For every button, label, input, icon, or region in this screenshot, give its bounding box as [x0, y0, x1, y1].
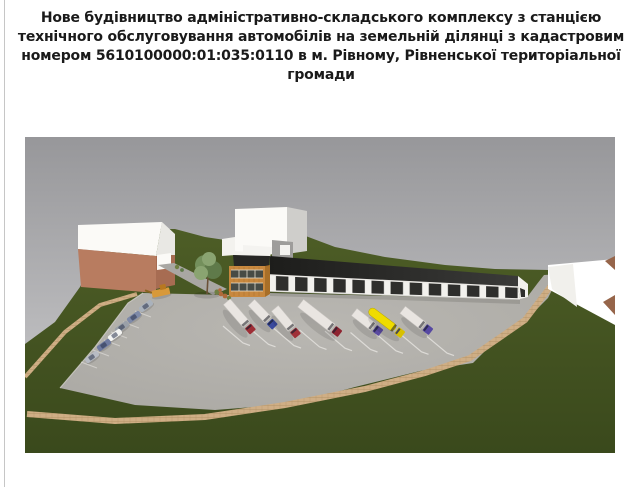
title-line: Нове будівництво адміністративно-складсь…: [10, 9, 632, 28]
site-3d-scene: [25, 137, 615, 453]
admin-building: [229, 251, 271, 297]
title-line: технічного обслуговування автомобілів на…: [10, 28, 632, 47]
project-title: Нове будівництво адміністративно-складсь…: [10, 9, 632, 85]
roof-box: [280, 245, 290, 255]
title-line: громади: [10, 66, 632, 85]
architectural-render: [25, 137, 615, 453]
admin-roof: [233, 255, 270, 267]
title-line: номером 5610100000:01:035:0110 в м. Рівн…: [10, 47, 632, 66]
brick-building: [78, 222, 175, 293]
page-edge-line: [4, 0, 5, 487]
admin-side: [265, 265, 270, 297]
